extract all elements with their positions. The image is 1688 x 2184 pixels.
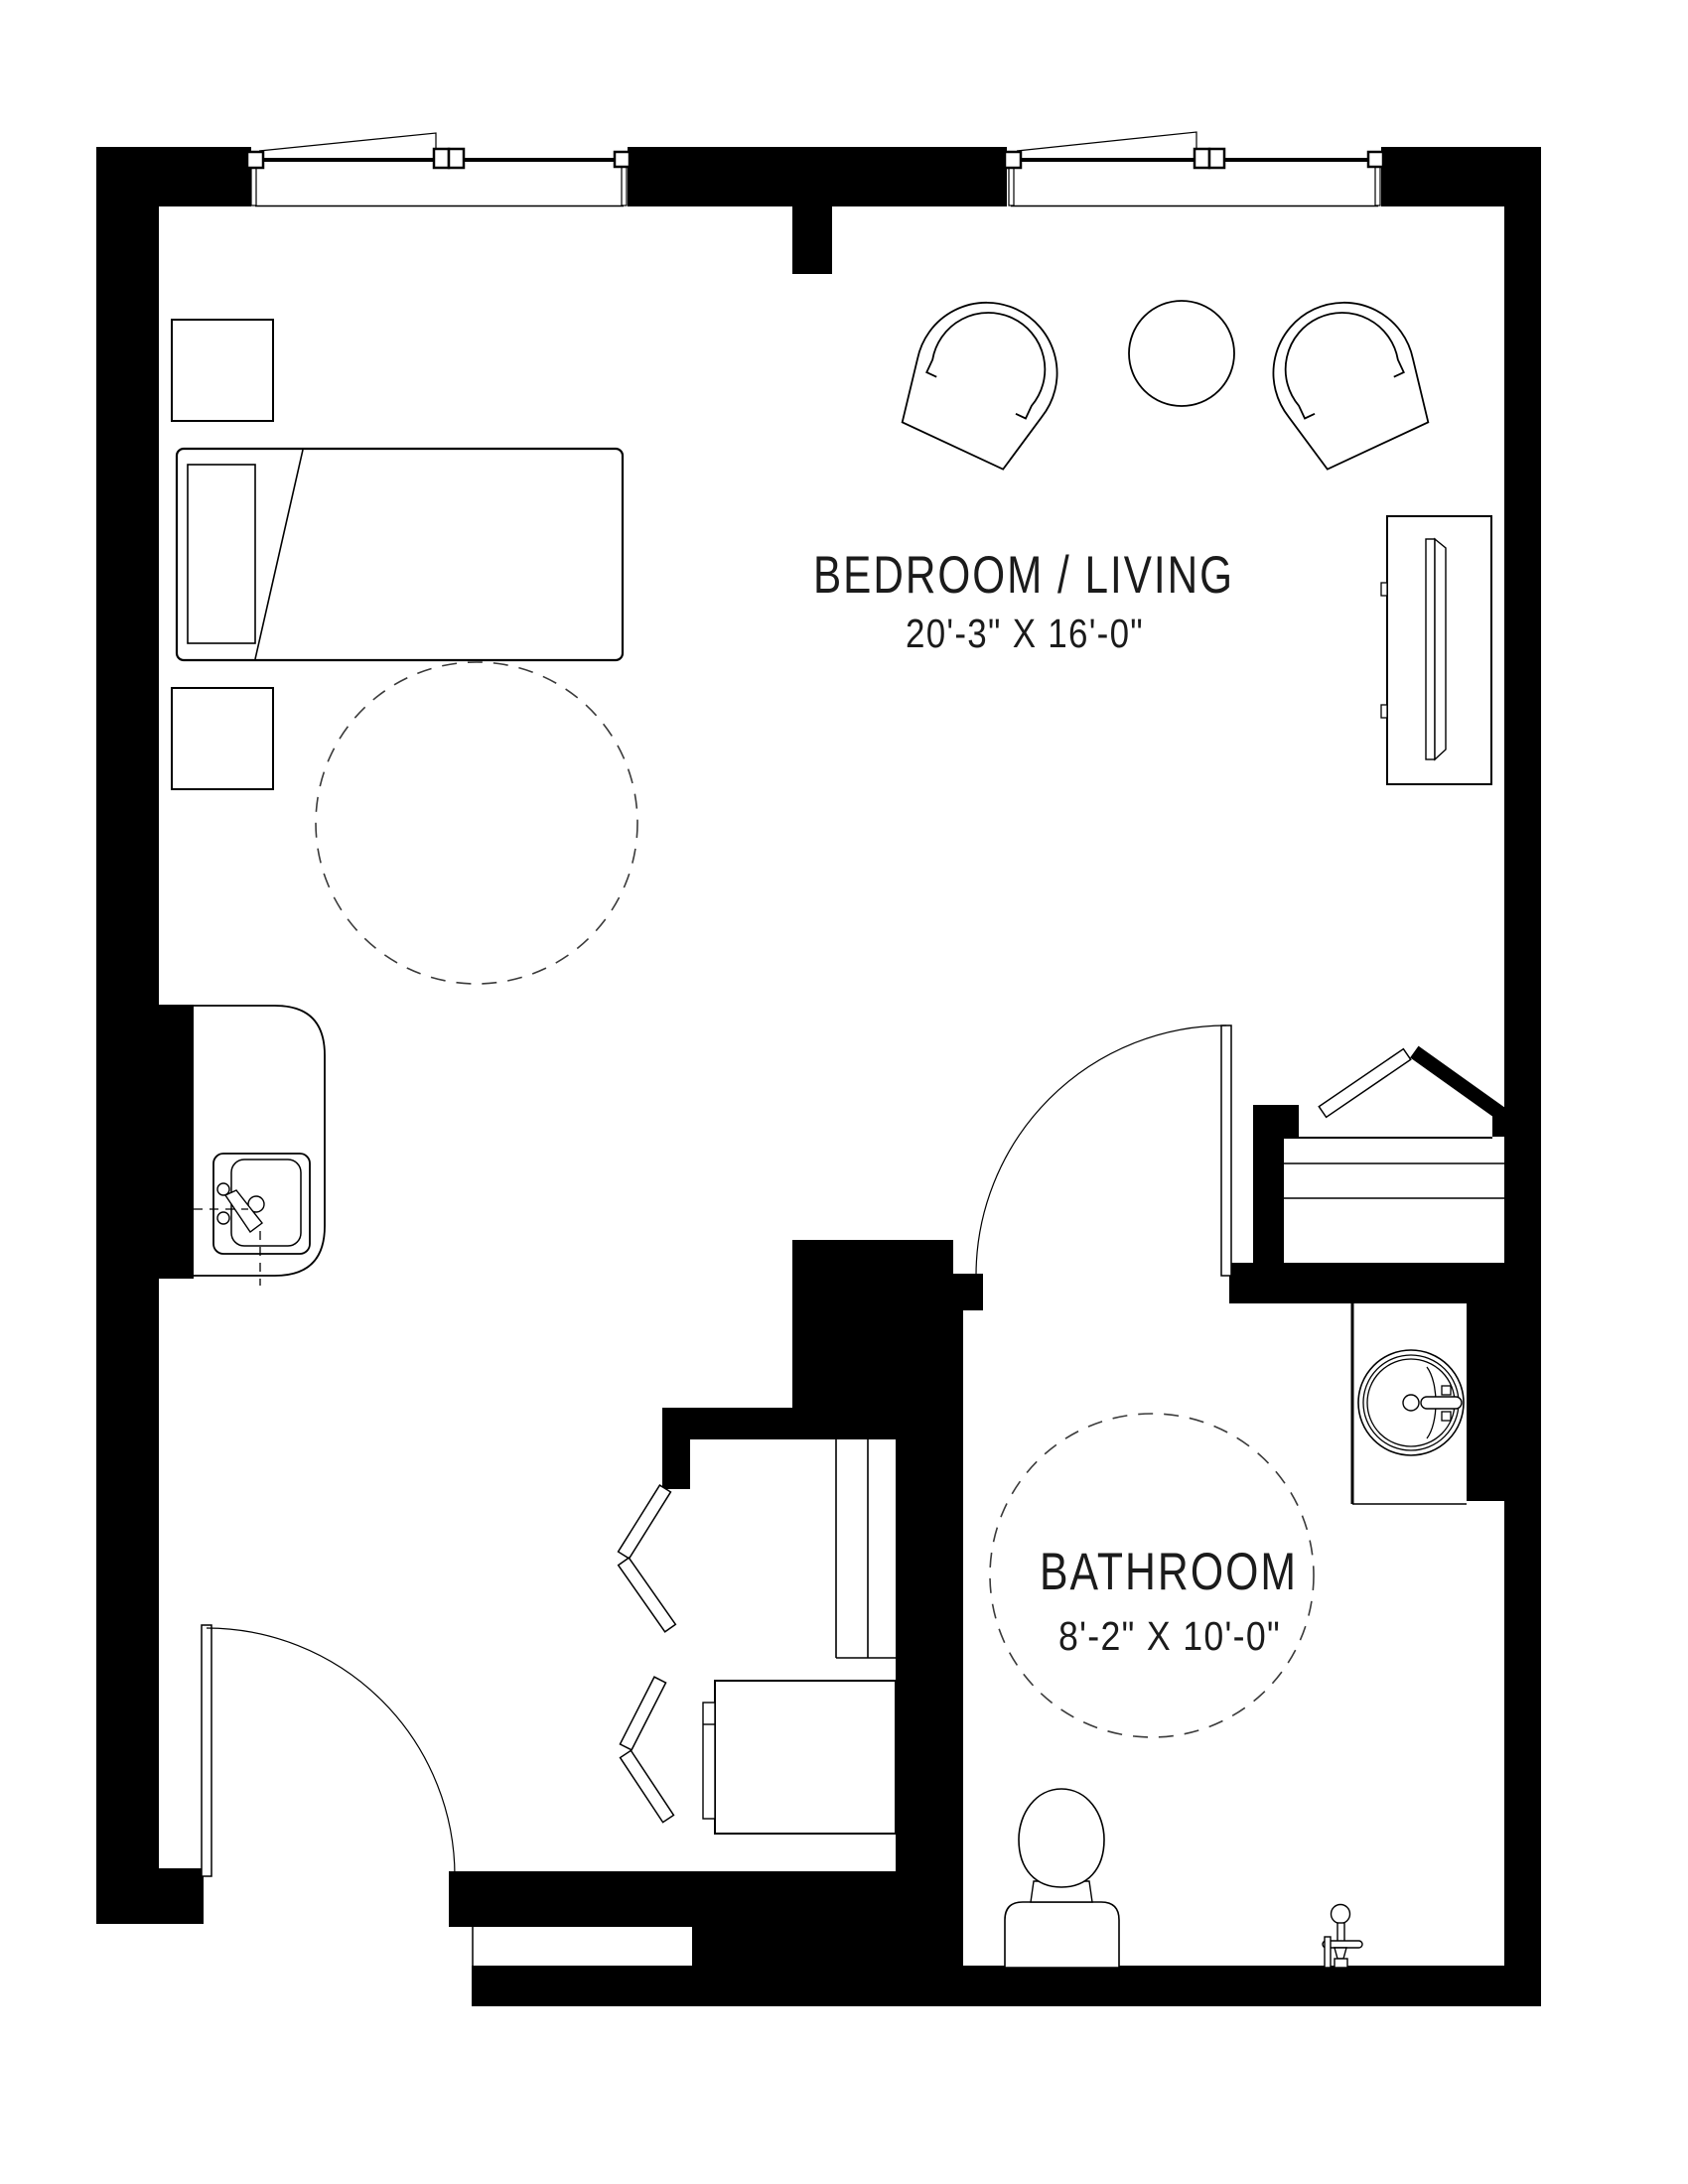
wall-segment: [933, 1310, 963, 1439]
nightstand-top: [172, 320, 273, 421]
bifold-door-leaf: [1319, 1049, 1410, 1118]
chair-outline: [889, 279, 1080, 476]
wall-pier: [792, 206, 832, 274]
round-side-table: [1129, 301, 1234, 406]
window-right: [1005, 132, 1383, 206]
toilet-bowl: [1019, 1789, 1104, 1887]
wall-segment: [1229, 1263, 1504, 1303]
sink-spout: [1421, 1397, 1462, 1409]
wall-segment: [96, 147, 159, 1868]
turning-circle-bedroom: [316, 662, 637, 984]
shower-valve: [1323, 1905, 1362, 1969]
bifold-door-leaf: [619, 1485, 671, 1559]
wall-pier: [1253, 1105, 1299, 1137]
chair-outline: [1250, 279, 1442, 476]
bedroom-living-label: BEDROOM / LIVING: [813, 546, 1234, 605]
sink-handle: [1442, 1412, 1451, 1421]
faucet-handle: [217, 1183, 229, 1195]
wall-segment: [96, 1868, 204, 1924]
window-mullion: [449, 149, 464, 168]
window-mullion: [1209, 149, 1224, 168]
tv-console: [1381, 516, 1491, 784]
window-jamb: [1009, 165, 1014, 205]
window-operation-line: [1017, 132, 1196, 151]
bathroom-label: BATHROOM: [1040, 1543, 1298, 1601]
bedroom-living-dimensions: 20'-3" X 16'-0": [906, 611, 1144, 656]
window-jamb: [1375, 165, 1380, 205]
faucet-handle: [217, 1212, 229, 1224]
window-mullion: [615, 152, 630, 167]
floor-plan-page: BEDROOM / LIVING 20'-3" X 16'-0" BATHROO…: [0, 0, 1688, 2184]
nightstand-bottom: [172, 688, 273, 789]
sink-handle: [1442, 1386, 1451, 1395]
bifold-door-leaf: [619, 1558, 676, 1632]
bathroom-door: [976, 1025, 1231, 1276]
window-mullion: [247, 152, 263, 168]
bed: [177, 449, 623, 660]
entry-door-swing-arc: [207, 1628, 455, 1876]
bifold-door-leaf: [621, 1750, 674, 1822]
toilet-tank: [1005, 1902, 1119, 1968]
linen-closet: [1284, 1047, 1505, 1198]
lounge-chair-right: [1250, 279, 1442, 476]
wall-chase: [792, 1240, 953, 1439]
entry-closet: [619, 1439, 933, 1834]
lounge-chair-left: [889, 279, 1080, 476]
wall-segment: [1504, 147, 1541, 2006]
bathroom-vanity: [1352, 1303, 1467, 1504]
toilet: [1005, 1789, 1119, 1968]
wall-segment: [628, 147, 1007, 206]
wall-segment: [472, 1966, 1541, 2006]
window-operation-line: [259, 133, 436, 151]
bed-pillow: [188, 465, 255, 643]
wall-segment: [896, 1439, 963, 1871]
window-jamb: [251, 165, 256, 205]
bathroom-door-swing-arc: [976, 1025, 1226, 1276]
window-mullion: [434, 149, 449, 168]
bathroom-dimensions: 8'-2" X 10'-0": [1058, 1613, 1281, 1659]
shower-pipe: [1325, 1937, 1331, 1968]
bathroom-door-leaf: [1221, 1025, 1231, 1276]
window-jamb: [622, 165, 627, 205]
sink-drain: [1403, 1395, 1419, 1411]
tv-mount-tab: [1381, 583, 1387, 596]
shower-valve-body: [1335, 1948, 1346, 1959]
kitchenette: [194, 1006, 325, 1286]
wall-segment: [1467, 1303, 1541, 1501]
wall-segment: [662, 1408, 792, 1439]
window-mullion: [1195, 149, 1209, 168]
closet-cabinet-door: [703, 1703, 715, 1819]
tv-mount-tab: [1381, 705, 1387, 718]
bifold-door-leaf: [620, 1677, 665, 1750]
shower-stem: [1337, 1923, 1344, 1942]
floor-plan-drawing: BEDROOM / LIVING 20'-3" X 16'-0" BATHROO…: [0, 0, 1688, 2184]
tv-screen-side: [1435, 539, 1446, 759]
tv-screen: [1426, 539, 1435, 759]
entry-door: [202, 1625, 473, 1966]
window-mullion: [1368, 152, 1383, 167]
shower-valve-base: [1335, 1959, 1347, 1968]
closet-cabinet: [715, 1681, 896, 1834]
wall-segment: [449, 1871, 692, 1927]
wall-pier: [662, 1439, 690, 1489]
wall-segment: [159, 1005, 194, 1279]
window-left: [247, 133, 630, 206]
entry-door-leaf: [202, 1625, 211, 1876]
window-mullion: [1005, 152, 1021, 168]
shower-head: [1332, 1905, 1350, 1924]
bifold-door-leaf-solid: [1411, 1047, 1505, 1120]
